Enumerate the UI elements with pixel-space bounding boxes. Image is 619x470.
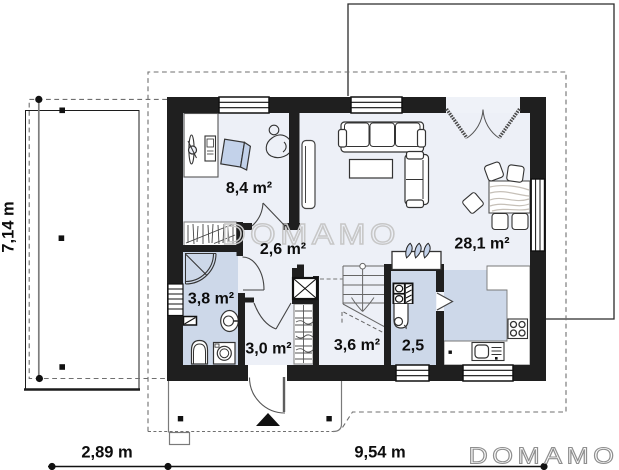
svg-text:3,8 m²: 3,8 m² — [188, 291, 234, 308]
svg-text:2,5: 2,5 — [402, 338, 424, 355]
svg-text:28,1 m²: 28,1 m² — [454, 236, 509, 253]
svg-text:DOMAMO: DOMAMO — [469, 443, 619, 469]
svg-text:7,14 m: 7,14 m — [0, 201, 18, 252]
svg-text:DOMAMO: DOMAMO — [222, 219, 400, 251]
svg-text:3,6 m²: 3,6 m² — [334, 337, 380, 354]
svg-text:9,54 m: 9,54 m — [354, 444, 405, 462]
svg-text:2,89 m: 2,89 m — [81, 444, 132, 462]
svg-text:3,0 m²: 3,0 m² — [245, 341, 291, 358]
svg-text:8,4 m²: 8,4 m² — [226, 180, 272, 197]
svg-text:2,6 m²: 2,6 m² — [260, 241, 306, 258]
